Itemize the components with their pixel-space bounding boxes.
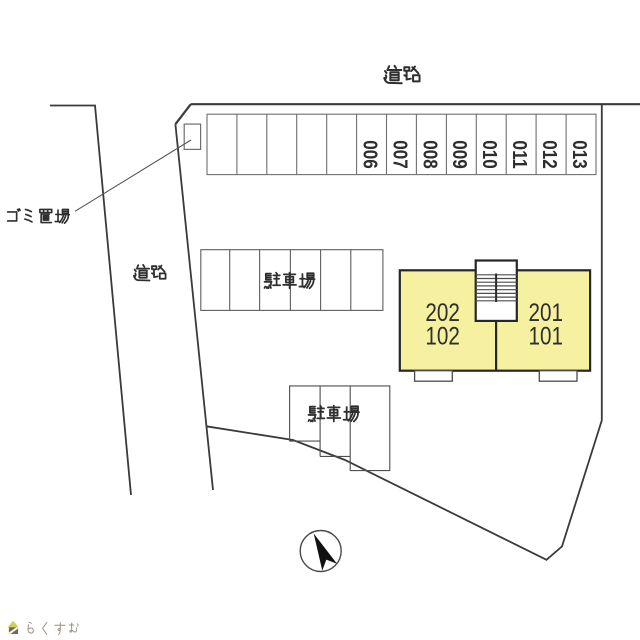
svg-text:102: 102 xyxy=(425,322,460,350)
svg-text:012: 012 xyxy=(538,140,560,169)
svg-text:007: 007 xyxy=(388,140,410,169)
svg-text:101: 101 xyxy=(529,322,564,350)
svg-text:011: 011 xyxy=(508,140,530,169)
svg-text:008: 008 xyxy=(418,140,440,169)
svg-text:013: 013 xyxy=(568,140,590,169)
svg-text:006: 006 xyxy=(358,140,380,169)
svg-text:009: 009 xyxy=(448,140,470,169)
svg-text:010: 010 xyxy=(478,140,500,169)
